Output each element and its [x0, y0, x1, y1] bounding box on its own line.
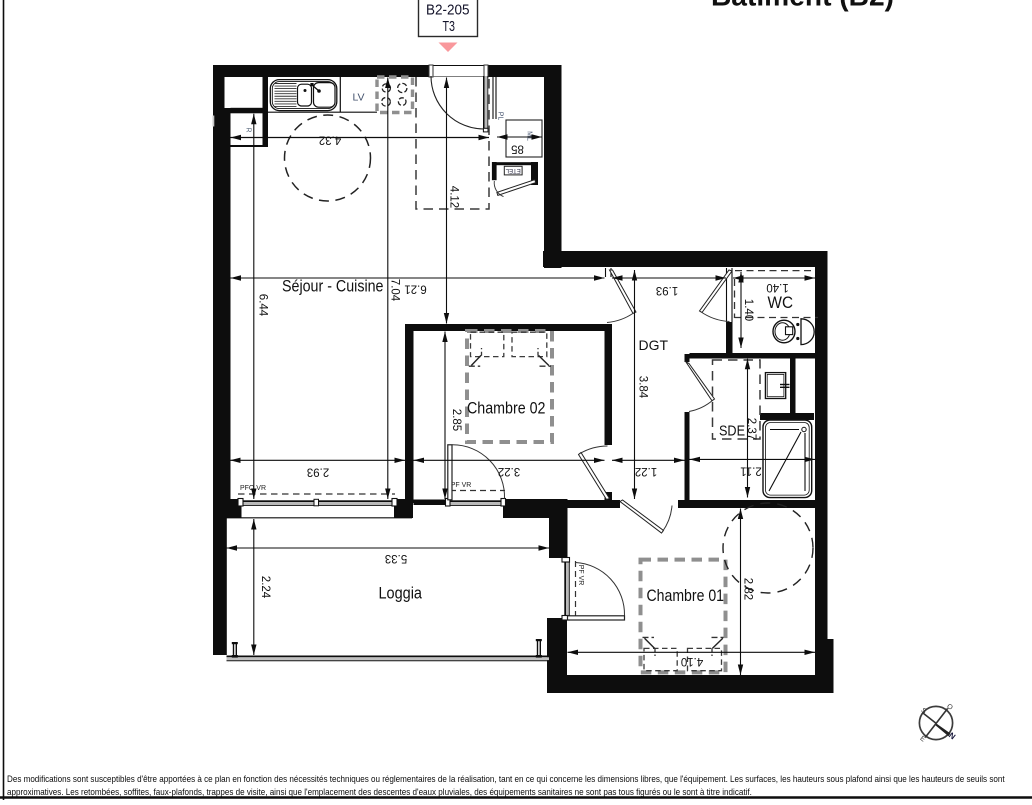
svg-text:ETEL: ETEL: [505, 167, 521, 173]
svg-text:PF VR: PF VR: [577, 565, 584, 586]
svg-text:DGT: DGT: [639, 338, 669, 353]
svg-text:LV: LV: [352, 91, 364, 103]
svg-text:PL: PL: [497, 112, 504, 121]
svg-text:85: 85: [511, 142, 524, 154]
svg-text:2.85: 2.85: [450, 409, 462, 431]
svg-text:1.22: 1.22: [635, 465, 657, 477]
svg-text:2.82: 2.82: [741, 578, 753, 600]
svg-text:3.22: 3.22: [498, 465, 520, 477]
svg-text:Loggia: Loggia: [379, 585, 423, 603]
svg-text:B2-205: B2-205: [426, 3, 470, 19]
svg-text:WC: WC: [768, 294, 794, 312]
svg-text:T3: T3: [443, 19, 456, 35]
svg-text:E: E: [918, 735, 926, 744]
svg-text:3.84: 3.84: [636, 376, 648, 399]
svg-text:S: S: [919, 707, 927, 716]
svg-text:Bâtiment (B2): Bâtiment (B2): [711, 0, 894, 13]
svg-text:6.21: 6.21: [404, 282, 426, 294]
svg-text:Chambre 02: Chambre 02: [467, 399, 546, 417]
svg-text:4.32: 4.32: [319, 133, 341, 145]
svg-text:4.10: 4.10: [681, 655, 703, 667]
svg-text:7.04: 7.04: [388, 279, 400, 302]
svg-text:Chambre 01: Chambre 01: [647, 587, 725, 605]
svg-text:4.12: 4.12: [447, 186, 459, 208]
svg-text:SDE: SDE: [719, 423, 745, 440]
svg-text:Séjour - Cuisine: Séjour - Cuisine: [282, 277, 384, 295]
svg-text:2.37: 2.37: [745, 418, 757, 440]
svg-text:1.40: 1.40: [766, 281, 788, 293]
svg-text:1.93: 1.93: [656, 284, 678, 296]
svg-text:5.33: 5.33: [385, 552, 407, 564]
svg-text:2.24: 2.24: [259, 576, 271, 599]
svg-text:R: R: [245, 127, 252, 132]
svg-text:2.93: 2.93: [307, 465, 329, 477]
svg-text:2.11: 2.11: [740, 464, 762, 476]
svg-text:1.40: 1.40: [742, 299, 754, 321]
svg-text:PF VR: PF VR: [451, 482, 472, 489]
svg-text:6.44: 6.44: [256, 294, 268, 317]
